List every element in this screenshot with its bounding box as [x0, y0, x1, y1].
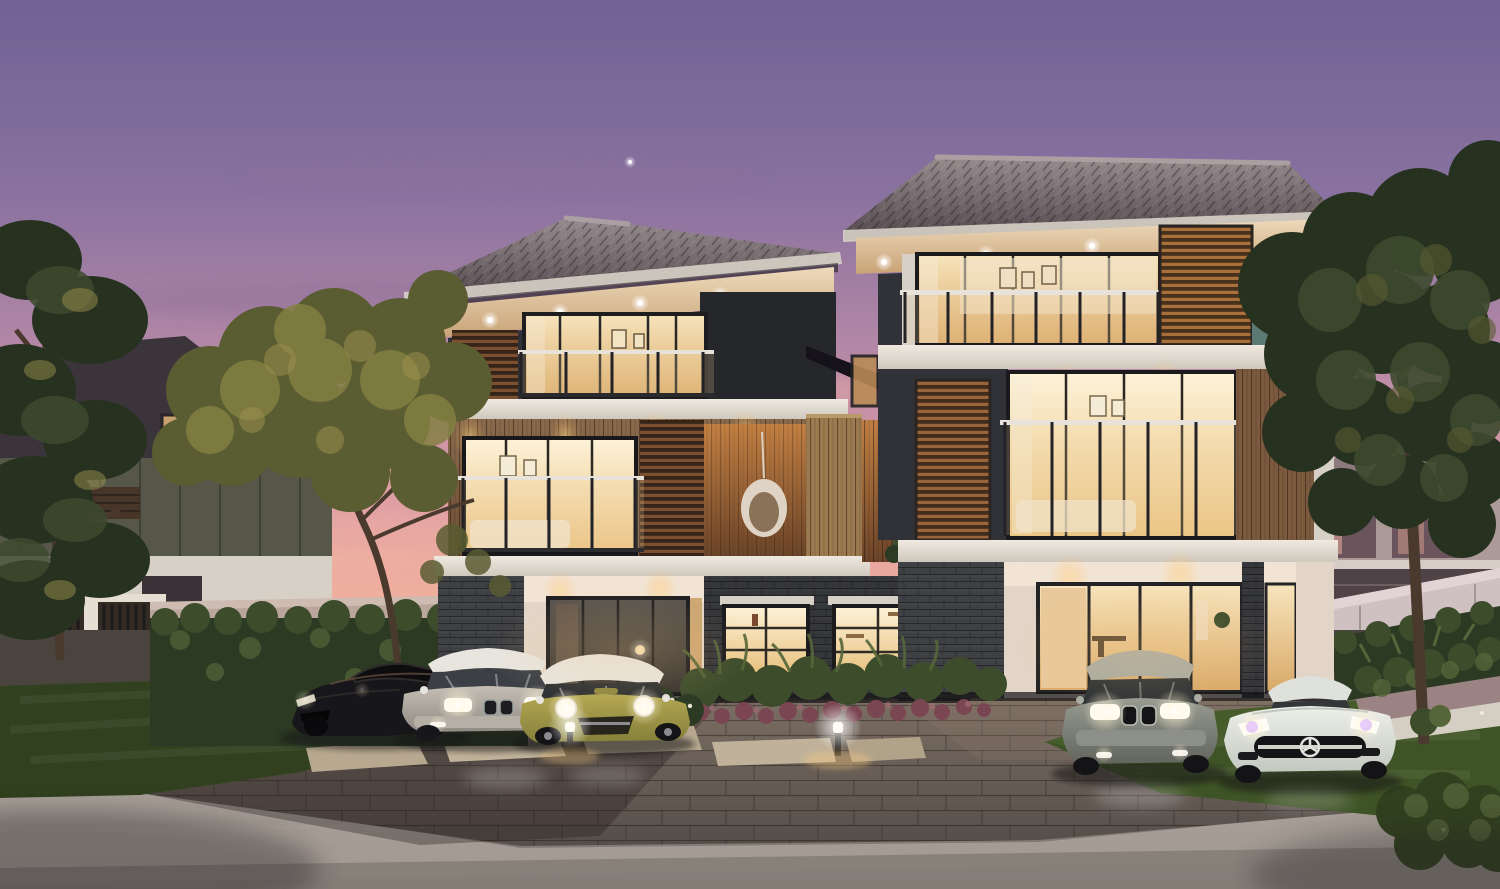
- second-balcony-railing: [1000, 420, 1244, 536]
- right-house-second-floor: [878, 358, 1334, 540]
- left-house-slab-upper: [434, 399, 848, 419]
- second-louver-panel: [916, 380, 990, 540]
- second-balcony-railing: [458, 476, 644, 552]
- dusk-townhouse-scene: [0, 0, 1500, 889]
- top-balcony-railing: [900, 290, 1162, 343]
- hanging-chair-porch: [704, 424, 806, 556]
- architectural-render: [0, 0, 1500, 889]
- top-balcony-railing: [518, 350, 714, 397]
- left-house-second-floor: [448, 408, 862, 558]
- star: [624, 156, 636, 168]
- right-house-slab-lower: [898, 540, 1338, 562]
- wood-partition: [806, 414, 862, 558]
